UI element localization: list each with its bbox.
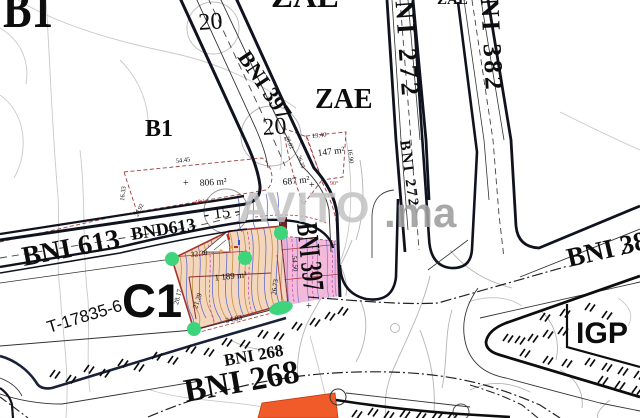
- svg-text:20: 20: [198, 8, 224, 36]
- svg-text:ZAE: ZAE: [315, 84, 373, 115]
- svg-text:B1: B1: [3, 0, 53, 39]
- svg-text:+: +: [183, 178, 189, 189]
- svg-text:B1: B1: [145, 116, 173, 142]
- svg-text:IGP: IGP: [576, 317, 628, 350]
- svg-text:+: +: [306, 301, 312, 312]
- svg-text:.ma: .ma: [384, 189, 457, 236]
- svg-text:54.50: 54.50: [290, 255, 300, 272]
- svg-text:BNI 382: BNI 382: [474, 0, 509, 90]
- svg-text:ZAE: ZAE: [437, 0, 468, 8]
- svg-text:ZAE: ZAE: [271, 0, 339, 15]
- svg-text:AVITO: AVITO: [238, 184, 370, 232]
- svg-text:806 m²: 806 m²: [200, 177, 228, 189]
